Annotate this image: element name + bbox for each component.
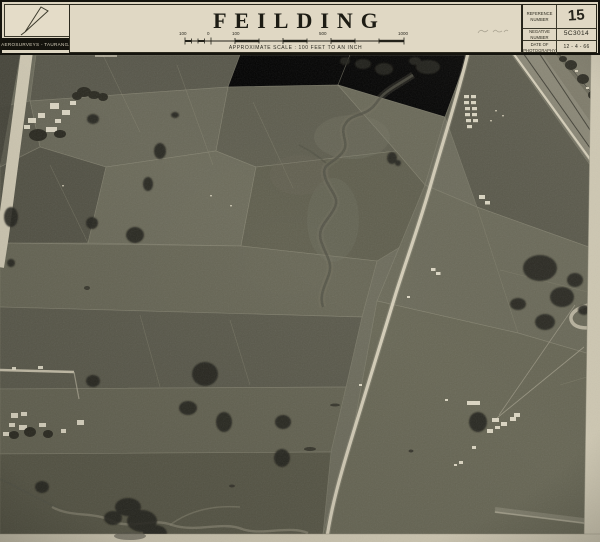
- negative-number-value: 5C3014: [557, 29, 596, 41]
- scale-tick-label: 100: [232, 31, 240, 36]
- logo-label: AEROSURVEYS - TAURANGA: [1, 42, 72, 47]
- title-box: FEILDING 100 0 100 500 1000: [69, 4, 522, 53]
- reference-number-value: 15: [557, 5, 596, 29]
- scale-tick-label: 500: [319, 31, 327, 36]
- scale-tick-label: 100: [179, 31, 187, 36]
- aerosurveys-logo-icon: [5, 5, 69, 36]
- reference-table: REFERENCE NUMBER 15 NEGATIVE NUMBER 5C30…: [522, 4, 597, 53]
- negative-number-label: NEGATIVE NUMBER: [523, 29, 557, 41]
- aerial-photograph: [0, 55, 600, 542]
- photography-date-label: DATE OF PHOTOGRAPHY: [523, 41, 557, 54]
- aerial-photo-graphic: [0, 55, 600, 542]
- vignette-overlay: [0, 55, 600, 542]
- pencil-annotation: [476, 24, 518, 38]
- scale-tick-label: 1000: [398, 31, 408, 36]
- logo-box: [4, 4, 70, 37]
- title-block: AEROSURVEYS - TAURANGA FEILDING 100 0 10…: [0, 0, 600, 55]
- scale-tick-label: 0: [207, 31, 210, 36]
- logo-strip: AEROSURVEYS - TAURANGA: [2, 38, 71, 50]
- aerial-photo-card: AEROSURVEYS - TAURANGA FEILDING 100 0 10…: [0, 0, 600, 542]
- reference-number-label: REFERENCE NUMBER: [523, 5, 557, 29]
- scale-caption: APPROXIMATE SCALE : 100 FEET TO AN INCH: [70, 45, 521, 51]
- photography-date-value: 12 - 4 - 66: [557, 41, 596, 54]
